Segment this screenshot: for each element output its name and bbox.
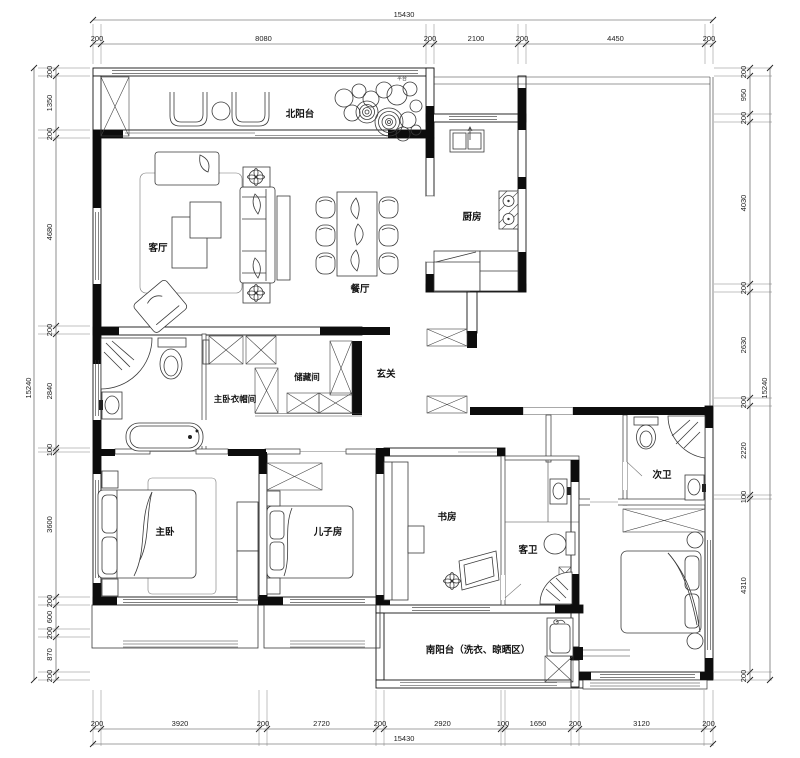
dim-label: 200 bbox=[45, 627, 54, 640]
dim-label: 15240 bbox=[24, 378, 33, 399]
dim-label: 200 bbox=[45, 595, 54, 608]
balcony-chairs bbox=[170, 92, 269, 126]
dim-label: 1650 bbox=[530, 719, 547, 728]
dim-label: 200 bbox=[569, 719, 582, 728]
dim-label: 200 bbox=[45, 66, 54, 79]
label-north-balcony: 北阳台 bbox=[286, 108, 315, 120]
dim-label: 200 bbox=[424, 34, 437, 43]
master-bath-fixtures bbox=[99, 338, 203, 451]
label-kitchen: 厨房 bbox=[462, 211, 481, 223]
dim-label: 200 bbox=[257, 719, 270, 728]
label-guest-bath: 客卫 bbox=[517, 544, 538, 556]
dim-label: 2100 bbox=[468, 34, 485, 43]
dim-label: 200 bbox=[702, 719, 715, 728]
dim-label: 1350 bbox=[45, 95, 54, 112]
kitchen-fixtures bbox=[434, 127, 518, 291]
se-bedroom-furniture bbox=[621, 532, 703, 649]
guest-bath-fixtures bbox=[505, 479, 575, 604]
dim-label: 200 bbox=[45, 324, 54, 337]
dim-label: 100 bbox=[497, 719, 510, 728]
dim-label: 8080 bbox=[255, 34, 272, 43]
dim-label: 15430 bbox=[394, 734, 415, 743]
dim-label: 200 bbox=[703, 34, 716, 43]
dim-label: 200 bbox=[739, 112, 748, 125]
dim-label: 200 bbox=[91, 719, 104, 728]
dim-label: 870 bbox=[45, 648, 54, 661]
label-study: 书房 bbox=[437, 511, 456, 523]
entry-door-opening bbox=[523, 408, 573, 415]
second-bath-fixtures bbox=[627, 416, 706, 500]
label-dining: 餐厅 bbox=[349, 283, 370, 295]
dim-label: 3120 bbox=[633, 719, 650, 728]
dim-label: 4030 bbox=[739, 195, 748, 212]
dim-label: 2720 bbox=[313, 719, 330, 728]
dim-label: 200 bbox=[45, 128, 54, 141]
dim-label: 200 bbox=[739, 282, 748, 295]
dim-label: 2220 bbox=[739, 442, 748, 459]
sons-room-furniture bbox=[267, 491, 353, 594]
dim-label: 200 bbox=[516, 34, 529, 43]
dim-label: 600 bbox=[45, 611, 54, 624]
label-master-closet: 主卧衣帽间 bbox=[214, 394, 257, 404]
dim-label: 200 bbox=[91, 34, 104, 43]
master-bedroom-furniture bbox=[98, 471, 258, 600]
dim-label: 4680 bbox=[45, 224, 54, 241]
dim-label: 200 bbox=[739, 670, 748, 683]
dim-label: 200 bbox=[739, 396, 748, 409]
dim-label: 200 bbox=[739, 66, 748, 79]
dim-label: 950 bbox=[739, 89, 748, 102]
dim-label: 100 bbox=[739, 491, 748, 504]
label-foyer: 玄关 bbox=[376, 368, 396, 380]
dim-label: 100 bbox=[45, 444, 54, 457]
dim-label: 4310 bbox=[739, 577, 748, 594]
dim-label: 200 bbox=[45, 670, 54, 683]
dim-label: 15430 bbox=[394, 10, 415, 19]
dim-label: 2630 bbox=[739, 337, 748, 354]
dining-furniture bbox=[316, 192, 398, 276]
label-storage: 储藏间 bbox=[293, 372, 320, 382]
dim-label: 3600 bbox=[45, 516, 54, 533]
label-sons-room: 儿子房 bbox=[313, 526, 343, 538]
label-master-bedroom: 主卧 bbox=[155, 526, 175, 538]
dim-label: 15240 bbox=[760, 378, 769, 399]
laundry-sink bbox=[547, 618, 573, 656]
dim-label: 2920 bbox=[434, 719, 451, 728]
label-south-balcony: 南阳台（洗衣、晾晒区） bbox=[426, 644, 531, 656]
label-living: 客厅 bbox=[147, 242, 168, 254]
dim-label: 2840 bbox=[45, 383, 54, 400]
furniture bbox=[98, 82, 706, 656]
floor-plan-page: 2008080200210020044502001543020039202002… bbox=[0, 0, 800, 758]
label-second-bath: 次卫 bbox=[652, 469, 672, 481]
study-furniture bbox=[384, 462, 499, 600]
room-labels: 北阳台 客厅 餐厅 厨房 玄关 储藏间 主卧衣帽间 主卧 儿子房 书房 客卫 次… bbox=[147, 75, 672, 656]
dim-label: 3920 bbox=[172, 719, 189, 728]
dimension-annotations: 2008080200210020044502001543020039202002… bbox=[24, 10, 773, 747]
label-platform-note: 平台 bbox=[397, 75, 407, 82]
floor-plan-drawing: 2008080200210020044502001543020039202002… bbox=[0, 0, 800, 758]
dim-label: 4450 bbox=[607, 34, 624, 43]
dim-label: 200 bbox=[374, 719, 387, 728]
